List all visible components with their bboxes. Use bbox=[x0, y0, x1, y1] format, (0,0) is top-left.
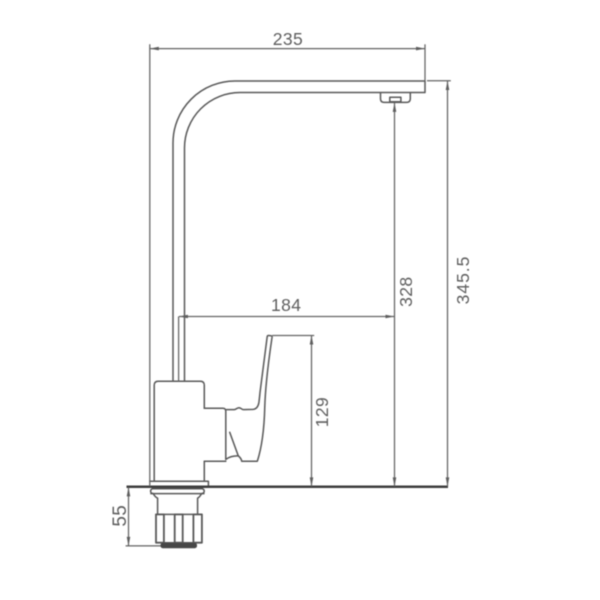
svg-text:184: 184 bbox=[271, 295, 301, 315]
svg-text:235: 235 bbox=[273, 29, 303, 49]
svg-text:328: 328 bbox=[396, 276, 416, 306]
svg-text:345.5: 345.5 bbox=[453, 256, 473, 305]
svg-text:55: 55 bbox=[110, 505, 131, 527]
svg-text:129: 129 bbox=[312, 397, 332, 427]
